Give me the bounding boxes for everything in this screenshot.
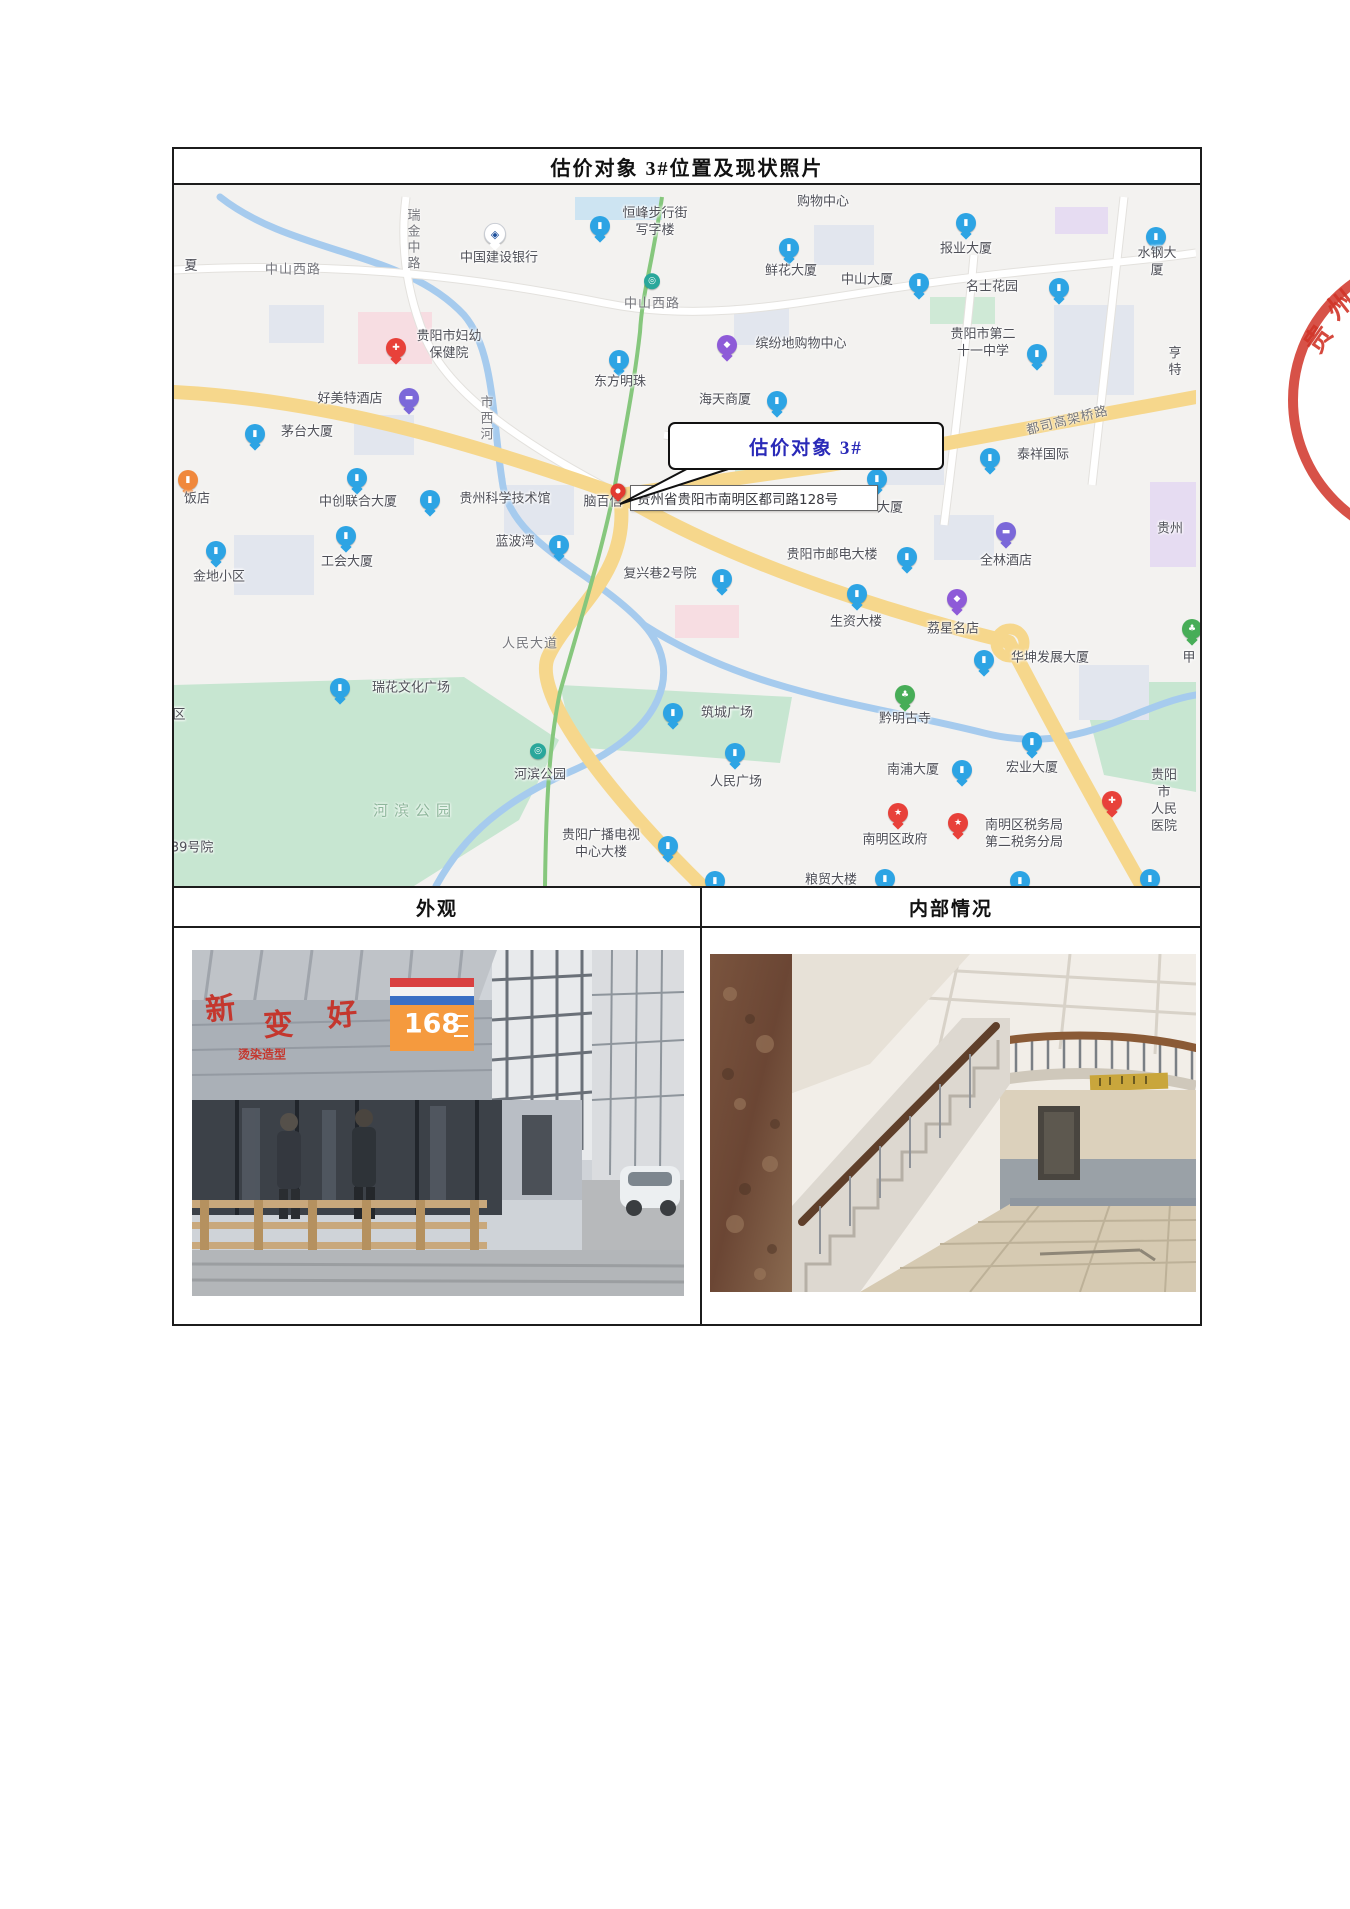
exterior-photo: 新变好烫染造型168 (192, 950, 684, 1296)
map-poi-icon: ◎ (644, 273, 660, 289)
map-poi-icon: ▮ (336, 526, 356, 546)
map-poi-icon: ▬ (399, 388, 419, 408)
map-poi-icon: ▮ (974, 650, 994, 670)
map-poi-icon: ▮ (1146, 227, 1166, 247)
map-poi-icon: ▮ (347, 468, 367, 488)
map-poi-icon: ▮ (206, 541, 226, 561)
map-poi-icon: ★ (948, 813, 968, 833)
page-title: 估价对象 3#位置及现状照片 (551, 152, 824, 181)
map-poi-icon: ▮ (909, 273, 929, 293)
map-poi-icon: ▮ (1022, 732, 1042, 752)
map-poi-icon: ◈ (484, 223, 506, 245)
map-poi-icon: ▮ (663, 703, 683, 723)
map-poi-icon: ▮ (847, 584, 867, 604)
subject-callout-text: 估价对象 3# (749, 433, 863, 460)
map-poi-icon: ▮ (1140, 869, 1160, 888)
map-poi-icon: ◆ (717, 335, 737, 355)
map-poi-icon: ▮ (725, 743, 745, 763)
interior-header: 内部情况 (702, 888, 1200, 926)
exterior-photo-cell: 新变好烫染造型168 (174, 928, 702, 1324)
map-poi-icon: ▮ (609, 350, 629, 370)
map-poi-icon: ▮ (245, 424, 265, 444)
map-poi-icon: ▮ (956, 213, 976, 233)
photo-header-row: 外观 内部情况 (174, 888, 1200, 928)
map-poi-icon: ◆ (947, 589, 967, 609)
map-poi-icon: ▮ (875, 869, 895, 888)
map-base-art (174, 185, 1196, 886)
map-poi-icon: ▮ (590, 216, 610, 236)
map-poi-icon: ▮ (980, 448, 1000, 468)
map-poi-icon: ★ (888, 803, 908, 823)
map-poi-icon: ♣ (895, 685, 915, 705)
map-poi-icon: ▬ (996, 522, 1016, 542)
report-table: 估价对象 3#位置及现状照片 (172, 147, 1202, 1326)
interior-photo (710, 954, 1196, 1292)
map-poi-icon: ▮ (549, 535, 569, 555)
map-poi-icon: ▮ (705, 871, 725, 888)
map-poi-icon: ✚ (1102, 791, 1122, 811)
table-title-row: 估价对象 3#位置及现状照片 (174, 149, 1200, 185)
map-poi-icon: ▮ (420, 490, 440, 510)
map-poi-icon: ▮ (767, 391, 787, 411)
interior-photo-cell (702, 928, 1200, 1324)
subject-callout: 估价对象 3# (668, 422, 944, 470)
exterior-photo-art (192, 950, 684, 1296)
map-poi-icon: ◎ (530, 743, 546, 759)
map-poi-icon: ▮ (178, 470, 198, 490)
map-poi-icon: ▮ (779, 238, 799, 258)
map-poi-icon: ▮ (1049, 278, 1069, 298)
map-poi-icon: ▮ (330, 678, 350, 698)
map-poi-icon: ▮ (712, 569, 732, 589)
document-page: 估价对象 3#位置及现状照片 (0, 0, 1350, 1909)
map-poi-icon: ▮ (1027, 344, 1047, 364)
map-poi-icon: ▮ (658, 836, 678, 856)
map-poi-icon: ✚ (386, 338, 406, 358)
map-poi-icon: ▮ (897, 547, 917, 567)
map-poi-icon: ♣ (1182, 619, 1200, 639)
map-poi-icon: ▮ (952, 760, 972, 780)
location-map: 夏◈中国建设银行▮恒峰步行街 写字楼购物中心▮报业大厦▮水钢大厦▮鲜花大厦▮中山… (174, 185, 1200, 888)
exterior-header: 外观 (174, 888, 702, 926)
photo-row: 新变好烫染造型168 (174, 928, 1200, 1324)
interior-photo-art (710, 954, 1196, 1292)
map-poi-icon: ▮ (1010, 871, 1030, 888)
